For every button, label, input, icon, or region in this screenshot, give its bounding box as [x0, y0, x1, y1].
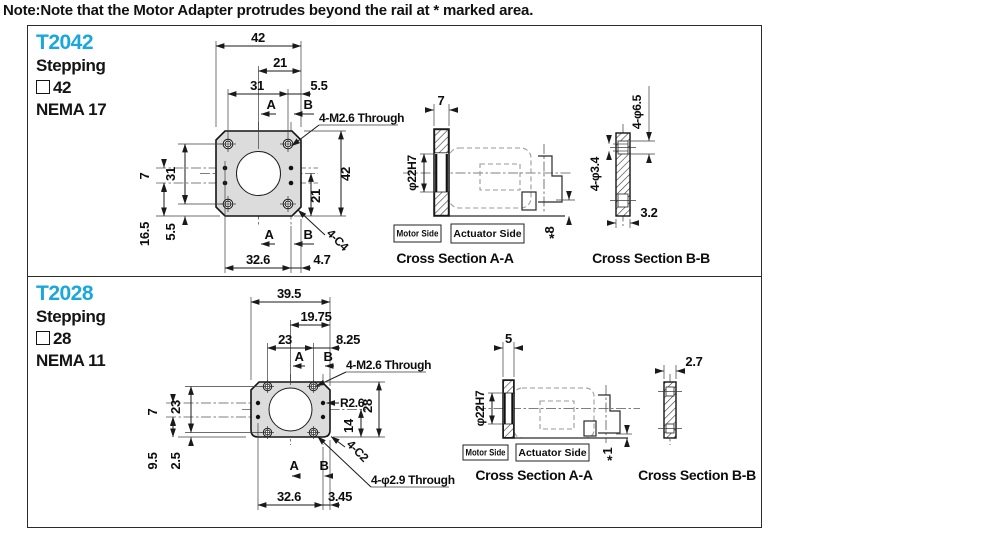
dim-bottom-width: 32.6 [277, 489, 301, 504]
dim-height-half: 14 [341, 418, 356, 433]
panel-t2028: T2028 Stepping 28 NEMA 11 [28, 276, 761, 527]
section-a-label-bottom: A [289, 458, 299, 473]
dim-hole-pitch-v: 31 [163, 167, 178, 181]
chamfer-note: 4-C2 [344, 437, 372, 465]
dim-hole-pitch-v: 23 [168, 400, 183, 414]
protrusion-dim: 1 * [600, 425, 632, 468]
section-a-label-top: A [266, 97, 276, 112]
dim-flange-thickness: 5 [505, 331, 512, 346]
catalog-drawing-sheet: Note:Note that the Motor Adapter protrud… [0, 0, 998, 557]
protrusion-note: Note:Note that the Motor Adapter protrud… [3, 2, 533, 19]
t2028-section-aa: 5 [463, 331, 640, 483]
right-dimensions: 21 42 [294, 131, 353, 216]
dim-width-total: 39.5 [277, 286, 301, 301]
counterbore-dim: 4-φ6.5 [630, 86, 655, 163]
dim-hole-pitch: 23 [278, 332, 292, 347]
dim-flange-thickness: 7 [438, 93, 445, 108]
section-aa-caption: Cross Section A-A [475, 467, 592, 483]
actuator-side-label: Actuator Side [453, 228, 521, 240]
bore-spec: φ22H7 [473, 390, 487, 426]
section-b-label-top: B [323, 349, 332, 364]
dim-lower-a: 16.5 [137, 222, 152, 246]
drill-callout: 4-φ2.9 Through [318, 437, 455, 488]
section-aa-caption: Cross Section A-A [396, 250, 513, 266]
section-bb-caption: Cross Section B-B [592, 250, 710, 266]
dim-height-total: 28 [360, 399, 375, 413]
flange-section [503, 380, 514, 438]
t2042-section-bb: 4-φ6.5 4-φ3.4 [588, 86, 710, 266]
center-bore [269, 388, 312, 431]
dim-bottom-edge: 3.45 [328, 489, 352, 504]
thread-note: 4-M2.6 Through [346, 358, 431, 372]
bottom-dimensions: A B 32.6 3.45 4-C2 [258, 437, 372, 511]
dim-bottom-edge: 4.7 [313, 252, 330, 267]
flange-section [434, 129, 449, 216]
section-b-label-bottom: B [319, 458, 328, 473]
dim-rail-pitch: 7 [137, 172, 152, 179]
depth-value: 2.7 [685, 354, 702, 369]
t2028-section-bb: 2.7 Cross Section B-B [638, 354, 756, 483]
top-dimensions: 39.5 19.75 23 8.25 A B [251, 286, 360, 386]
chamfer-note: 4-C4 [324, 226, 352, 254]
depth-dim: 3.2 [607, 205, 658, 228]
motor-side-label: Motor Side [466, 448, 506, 459]
actuator-ghost-outline [514, 385, 628, 443]
counterbore-spec: 4-φ6.5 [630, 94, 644, 129]
thread-callout: 4-M2.6 Through [292, 111, 405, 146]
dim-lower-b: 2.5 [168, 452, 183, 469]
drawing-table: T2042 Stepping 42 NEMA 17 [27, 25, 762, 528]
drill-note: 4-φ2.9 Through [371, 473, 455, 487]
section-bb-caption: Cross Section B-B [638, 467, 756, 483]
dim-bottom-width: 32.6 [246, 252, 270, 267]
t2028-drawing: 39.5 19.75 23 8.25 A B [28, 277, 761, 527]
asterisk-marker: * [549, 230, 555, 246]
section-a-label-bottom: A [264, 227, 274, 242]
thread-note: 4-M2.6 Through [319, 111, 404, 125]
t2042-drawing: 42 21 31 5.5 A B [28, 26, 761, 276]
dim-hole-pitch: 31 [250, 78, 264, 93]
left-dimensions: 7 31 16.5 5.5 [137, 144, 224, 246]
dim-rail-pitch: 7 [145, 408, 160, 415]
depth-value: 3.2 [640, 205, 657, 220]
motor-side-label: Motor Side [397, 229, 439, 240]
dim-lower-b: 5.5 [163, 223, 178, 240]
left-dimensions: 7 23 9.5 2.5 [145, 387, 262, 470]
hole-spec: 4-φ3.4 [588, 156, 602, 191]
section-b-label-top: B [303, 97, 312, 112]
bore-spec: φ22H7 [405, 154, 419, 190]
actuator-side-label: Actuator Side [518, 447, 586, 459]
side-labels: Motor Side Actuator Side [463, 444, 589, 461]
t2042-section-aa: 7 [394, 93, 575, 266]
asterisk-marker: * [607, 452, 613, 468]
dim-height-total: 42 [338, 167, 353, 181]
center-bore [237, 152, 281, 196]
dim-width-half: 21 [273, 55, 287, 70]
panel-t2042: T2042 Stepping 42 NEMA 17 [28, 26, 761, 276]
dim-edge-offset: 5.5 [310, 78, 327, 93]
t2028-front-view: 39.5 19.75 23 8.25 A B [145, 286, 455, 510]
section-a-label-top: A [294, 349, 304, 364]
actuator-ghost-outline [449, 144, 565, 216]
side-labels: Motor Side Actuator Side [394, 224, 524, 243]
dim-lower-a: 9.5 [145, 452, 160, 469]
dim-width-total: 42 [251, 30, 265, 45]
dim-width-half: 19.75 [300, 309, 331, 324]
dim-edge-offset: 8.25 [336, 332, 360, 347]
protrusion-dim: 8 * [542, 191, 575, 246]
t2042-front-view: 42 21 31 5.5 A B [137, 30, 404, 273]
section-b-label-bottom: B [303, 227, 312, 242]
bottom-dimensions: A B 32.6 4.7 4-C4 [225, 210, 352, 273]
dim-height-half: 21 [308, 189, 323, 203]
